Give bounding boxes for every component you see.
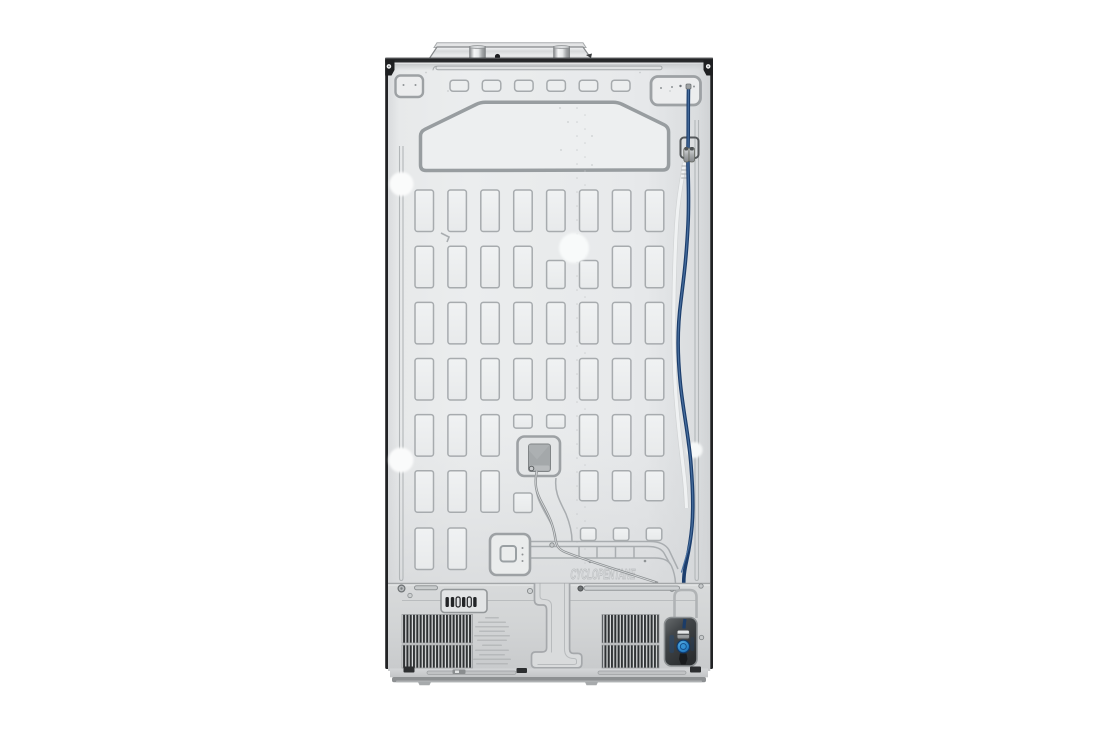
svg-text:CYCLOPENTANE: CYCLOPENTANE	[570, 567, 637, 583]
